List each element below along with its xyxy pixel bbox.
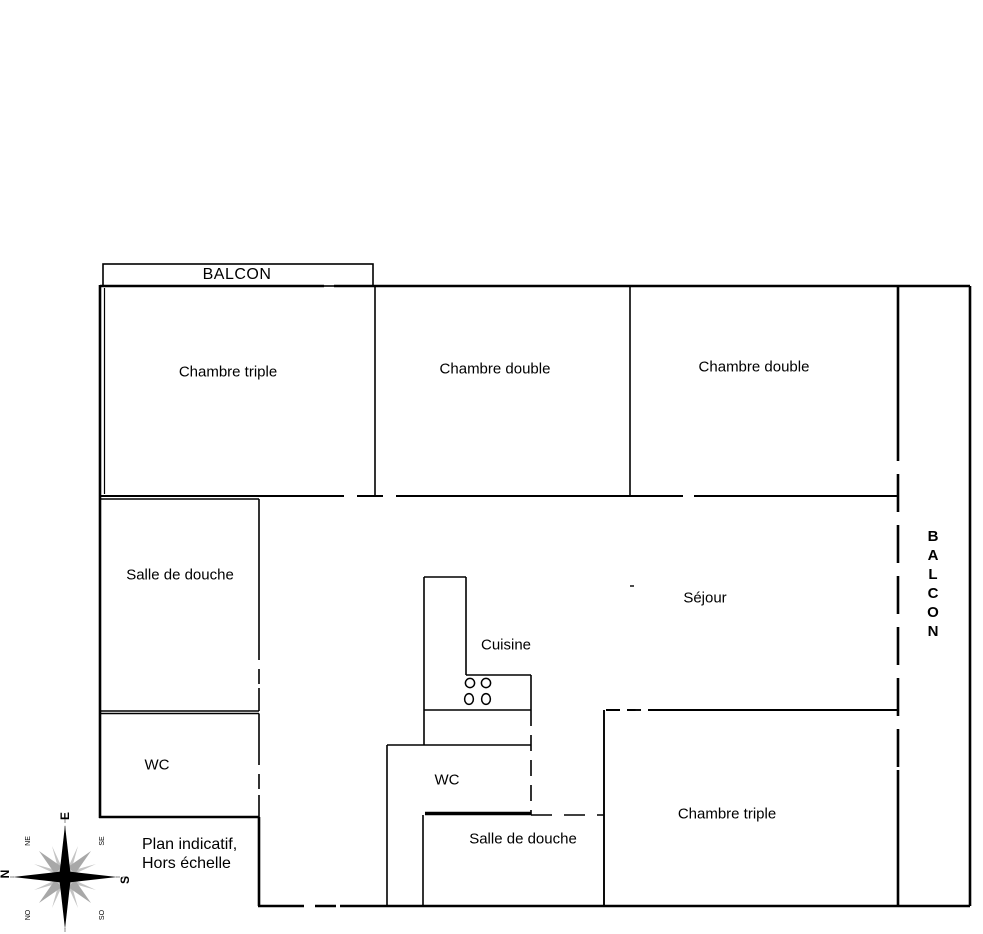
- compass-north-label: N: [0, 870, 12, 879]
- shower-room-top-walls: [100, 499, 259, 711]
- bedroom-double-mid-label: Chambre double: [440, 361, 551, 378]
- plan-note-line2: Hors échelle: [142, 855, 231, 872]
- compass-southeast-label: SE: [99, 836, 106, 846]
- plan-note-line1: Plan indicatif,: [142, 836, 237, 853]
- compass-southwest-label: SO: [99, 909, 106, 920]
- bedroom-triple-top-label: Chambre triple: [179, 364, 277, 381]
- plan-note: Plan indicatif, Hors échelle: [142, 835, 237, 873]
- shower-room-bottom-label: Salle de douche: [469, 831, 577, 848]
- wc-bottom-walls: [387, 710, 531, 906]
- shower-room-top-label: Salle de douche: [126, 567, 234, 584]
- wc-top-walls: [100, 714, 259, 818]
- kitchen-counter: [424, 577, 531, 745]
- bedroom-double-right-label: Chambre double: [699, 359, 810, 376]
- compass-rose: E S O N NE SE SO NO: [0, 812, 132, 934]
- compass-east-label: E: [58, 812, 72, 820]
- cooktop-burners: [465, 678, 491, 704]
- compass-northeast-label: NE: [25, 836, 32, 846]
- shower-room-bottom-walls: [423, 815, 604, 906]
- compass-northwest-label: NO: [25, 909, 32, 920]
- compass-south-label: S: [118, 876, 132, 884]
- living-room-label: Séjour: [683, 590, 726, 607]
- wc-top-label: WC: [145, 757, 170, 774]
- wc-bottom-label: WC: [435, 772, 460, 789]
- bedroom-triple-bottom-label: Chambre triple: [678, 806, 776, 823]
- balcony-top-label: BALCON: [203, 266, 272, 284]
- balcony-right-label: B A L C O N: [927, 527, 939, 641]
- kitchen-label: Cuisine: [481, 637, 531, 654]
- floor-plan-page: E S O N NE SE SO NO BALCON Chambre tripl…: [0, 0, 983, 934]
- floor-plan-drawing: E S O N NE SE SO NO: [0, 0, 983, 934]
